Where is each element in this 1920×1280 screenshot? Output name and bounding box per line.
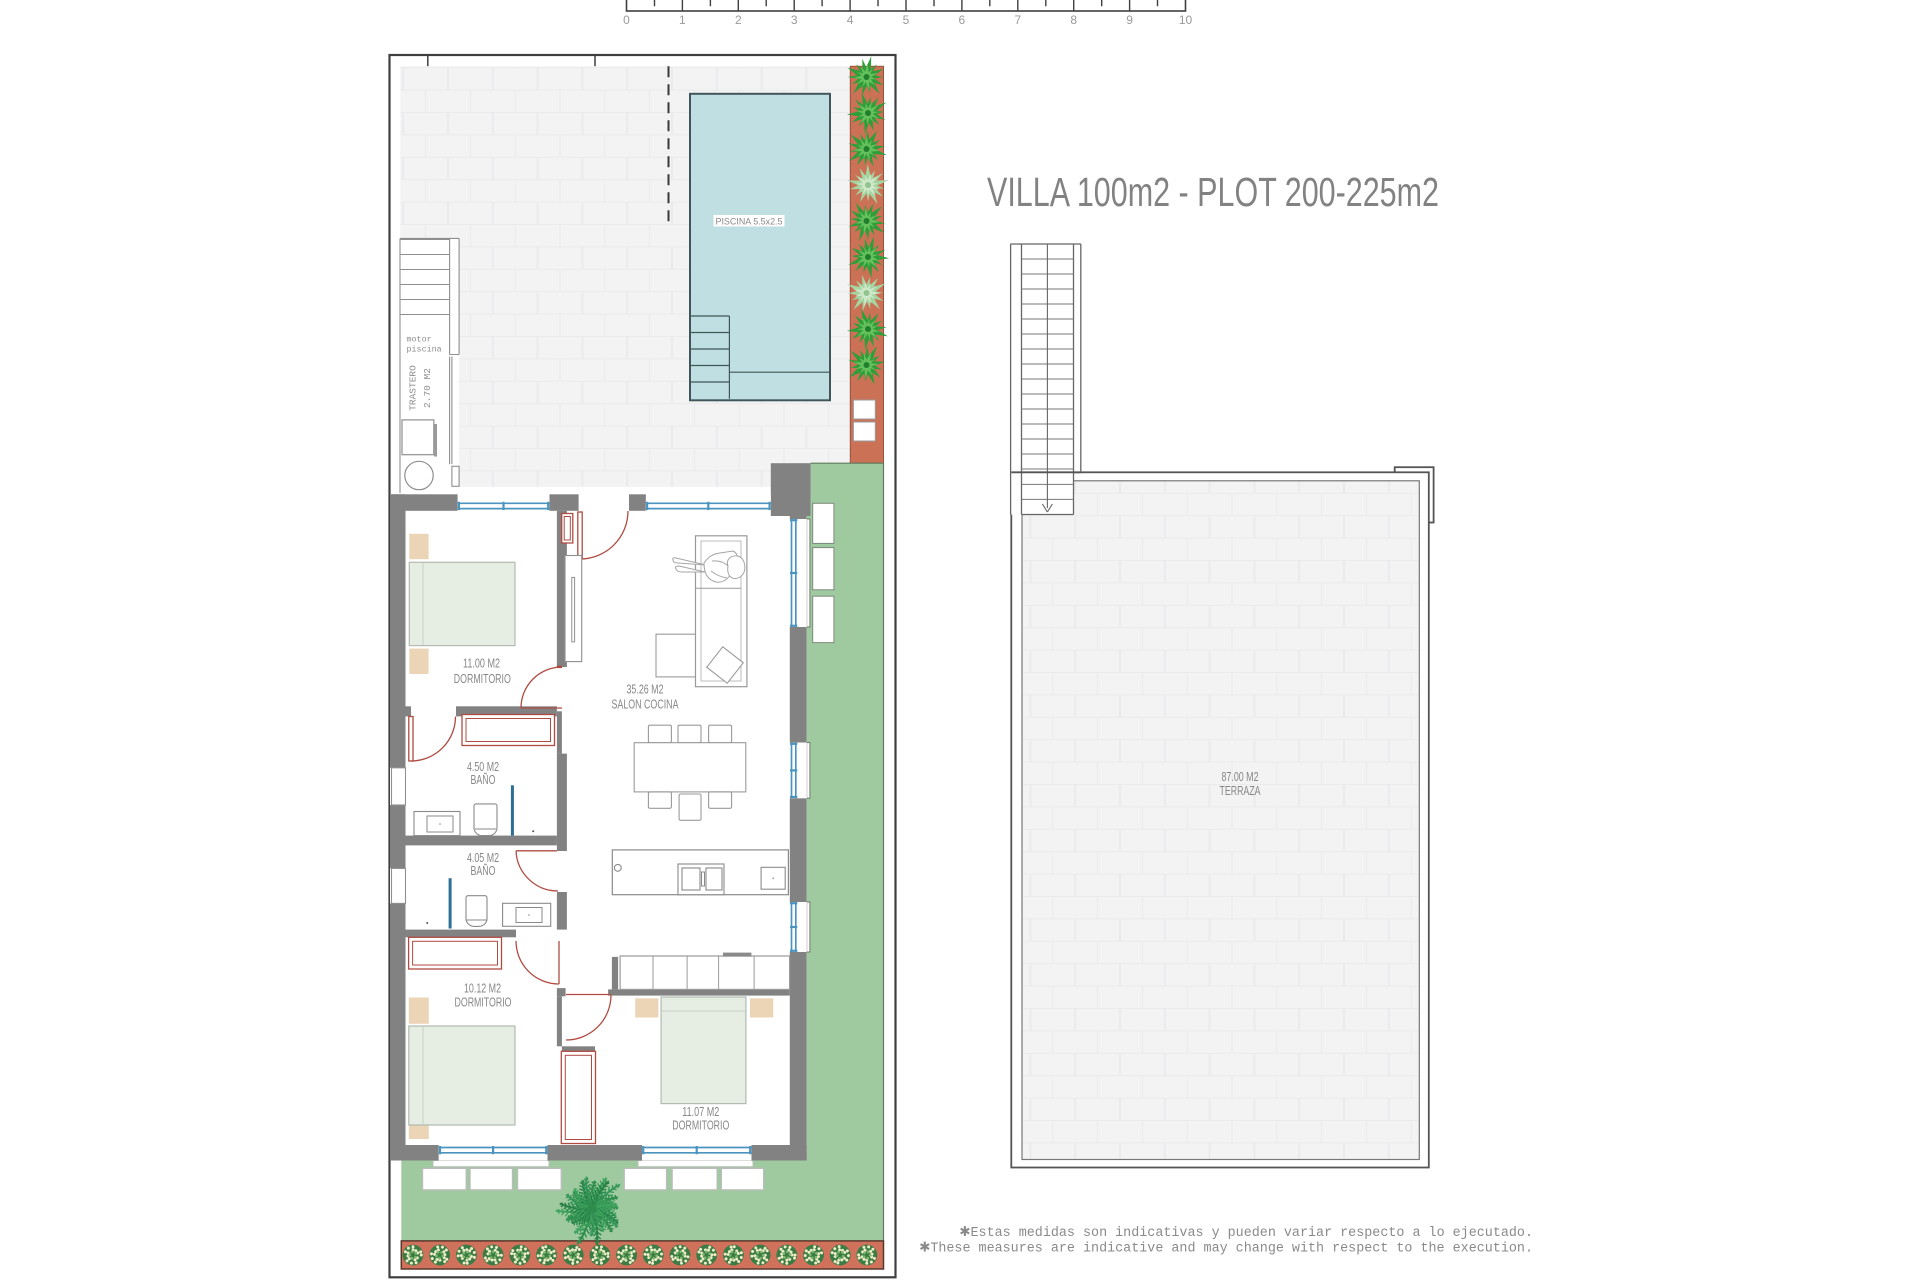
svg-text:8: 8 — [1070, 13, 1077, 27]
svg-text:10: 10 — [1179, 13, 1193, 27]
svg-text:SALON COCINA: SALON COCINA — [612, 697, 679, 712]
svg-text:7: 7 — [1014, 13, 1021, 27]
svg-text:2.70 M2: 2.70 M2 — [422, 368, 433, 408]
svg-text:1: 1 — [679, 13, 686, 27]
svg-text:5: 5 — [903, 13, 910, 27]
svg-text:87.00 M2: 87.00 M2 — [1222, 769, 1259, 784]
svg-text:DORMITORIO: DORMITORIO — [455, 994, 512, 1009]
svg-text:BAÑO: BAÑO — [471, 772, 496, 787]
svg-text:TERRAZA: TERRAZA — [1220, 783, 1261, 798]
svg-text:35.26 M2: 35.26 M2 — [627, 681, 664, 696]
svg-text:motor: motor — [407, 335, 432, 345]
svg-text:✱Estas medidas son indicativas: ✱Estas medidas son indicativas y pueden … — [959, 1226, 1533, 1241]
svg-text:10.12 M2: 10.12 M2 — [464, 981, 501, 996]
svg-text:2: 2 — [735, 13, 742, 27]
svg-text:3: 3 — [791, 13, 798, 27]
svg-text:DORMITORIO: DORMITORIO — [454, 671, 511, 686]
svg-text:0: 0 — [623, 13, 630, 27]
svg-text:✱These measures are indicative: ✱These measures are indicative and may c… — [919, 1242, 1533, 1257]
svg-text:DORMITORIO: DORMITORIO — [672, 1118, 729, 1133]
svg-text:6: 6 — [959, 13, 966, 27]
svg-text:PISCINA 5.5x2.5: PISCINA 5.5x2.5 — [716, 216, 783, 226]
svg-text:VILLA 100m2 - PLOT 200-225m2: VILLA 100m2 - PLOT 200-225m2 — [987, 169, 1439, 215]
svg-text:TRASTERO: TRASTERO — [408, 365, 419, 411]
svg-text:4: 4 — [847, 13, 854, 27]
svg-text:piscina: piscina — [407, 345, 442, 355]
svg-text:BAÑO: BAÑO — [471, 863, 496, 878]
svg-text:9: 9 — [1126, 13, 1133, 27]
svg-text:11.00 M2: 11.00 M2 — [463, 656, 500, 671]
